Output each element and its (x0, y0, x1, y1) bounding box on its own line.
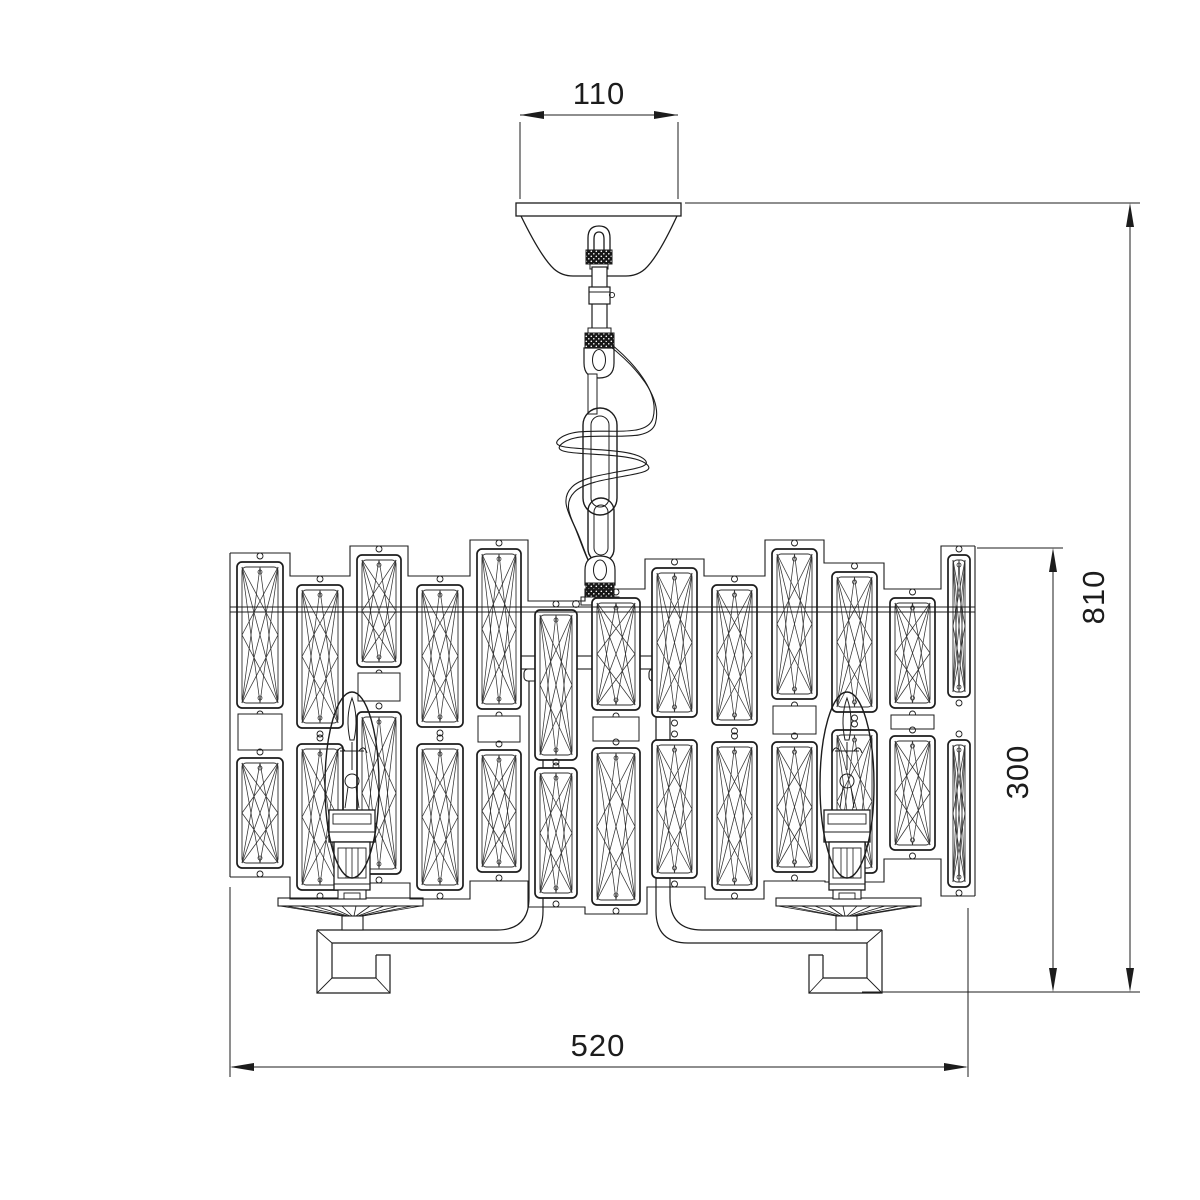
connector-ring (672, 559, 678, 565)
connector-ring (910, 853, 916, 859)
dimension-canopy-width: 110 (520, 76, 678, 199)
connector-ring (672, 731, 678, 737)
connector-ring (376, 546, 382, 552)
connector-ring (732, 576, 738, 582)
blank-panel (773, 706, 816, 734)
connector-ring (553, 601, 559, 607)
dimension-label-canopy-width: 110 (573, 76, 625, 111)
connector-ring (672, 720, 678, 726)
connector-ring (672, 881, 678, 887)
arrowhead-icon (1126, 203, 1134, 227)
dimension-body-height: 300 (977, 548, 1063, 992)
socket-housing (329, 810, 375, 842)
chandelier-technical-drawing: 110 810 300 520 (0, 0, 1200, 1200)
connector-ring (792, 540, 798, 546)
suspension-assembly (583, 267, 617, 562)
blank-panel (478, 716, 520, 742)
connector-ring (852, 715, 858, 721)
knurled-nut-icon (586, 583, 614, 597)
arrowhead-icon (230, 1063, 254, 1071)
connector-ring (317, 735, 323, 741)
connector-ring (613, 908, 619, 914)
connector-ring (852, 721, 858, 727)
connector-ring (317, 576, 323, 582)
chain-link (583, 408, 617, 515)
dimension-label-body-height: 300 (1000, 745, 1035, 800)
chain-link (588, 498, 614, 562)
rod-collar (589, 287, 610, 304)
arrowhead-icon (1049, 968, 1057, 992)
arrowhead-icon (1126, 968, 1134, 992)
connector-ring (257, 871, 263, 877)
canopy-plate (516, 203, 681, 216)
bobeche-fan (280, 906, 421, 916)
knurled-nut-icon (586, 250, 612, 264)
arrowhead-icon (1049, 548, 1057, 572)
connector-ring (956, 731, 962, 737)
connector-ring (910, 589, 916, 595)
bulb-tip (348, 698, 356, 740)
connector-ring (732, 893, 738, 899)
connector-ring (496, 875, 502, 881)
bobeche-stem (342, 916, 363, 930)
connector-ring (956, 890, 962, 896)
blank-panel (593, 717, 639, 741)
arrowhead-icon (654, 111, 678, 119)
ceiling-canopy (516, 203, 681, 276)
arrowhead-icon (944, 1063, 968, 1071)
drawing-sheet: 110 810 300 520 (0, 0, 1200, 1200)
dimension-label-body-width: 520 (571, 1028, 626, 1063)
dimension-label-overall-height: 810 (1076, 570, 1111, 625)
arrowhead-icon (520, 111, 544, 119)
blank-panel (358, 673, 400, 701)
blank-panel (238, 714, 282, 750)
connector-ring (553, 901, 559, 907)
connector-ring (792, 875, 798, 881)
connector-ring (956, 700, 962, 706)
connector-ring (376, 703, 382, 709)
connector-ring (852, 563, 858, 569)
connector-ring (437, 893, 443, 899)
connector-ring (376, 877, 382, 883)
connector-ring (437, 576, 443, 582)
connector-ring (496, 540, 502, 546)
connector-ring (956, 546, 962, 552)
connector-ring (257, 553, 263, 559)
